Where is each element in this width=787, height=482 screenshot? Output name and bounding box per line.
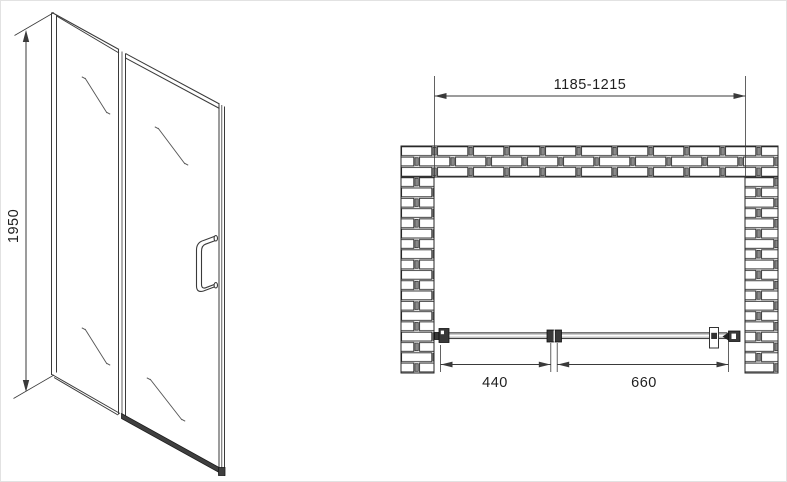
glass-marks bbox=[82, 77, 188, 421]
brick-wall-top bbox=[401, 146, 778, 177]
glass-mark bbox=[155, 127, 188, 165]
fixed-panel bbox=[52, 13, 126, 417]
arrow-left-icon bbox=[435, 93, 447, 99]
height-dimension: 1950 bbox=[6, 13, 54, 399]
plan-view: 1185-1215 bbox=[401, 76, 778, 391]
door-width-label: 660 bbox=[631, 375, 657, 391]
door-glass-plan bbox=[447, 333, 727, 339]
technical-drawing: 1950 bbox=[0, 0, 787, 482]
door-handle-plan bbox=[710, 328, 719, 349]
arrow-right-icon bbox=[717, 362, 729, 368]
arrow-right-icon bbox=[734, 93, 746, 99]
glass-mark bbox=[82, 328, 110, 365]
arrow-right-icon bbox=[539, 362, 551, 368]
width-range-label: 1185-1215 bbox=[554, 77, 627, 93]
door-handle bbox=[197, 236, 218, 292]
glass-mark bbox=[147, 378, 185, 421]
drawing-svg: 1950 bbox=[1, 1, 787, 482]
panel-connector bbox=[547, 330, 562, 342]
glass-mark bbox=[82, 77, 110, 114]
arrow-up-icon bbox=[23, 30, 29, 42]
handle-bottom-mount bbox=[214, 283, 217, 288]
door-stile-foot bbox=[219, 468, 226, 476]
brick-wall-right bbox=[745, 177, 778, 373]
handle-top-mount bbox=[214, 236, 217, 241]
height-dimension-label: 1950 bbox=[6, 209, 22, 243]
brick-wall-left bbox=[401, 177, 434, 373]
arrow-left-icon bbox=[441, 362, 453, 368]
wall-bracket-left bbox=[435, 329, 450, 343]
fixed-panel-width-label: 440 bbox=[482, 375, 508, 391]
arrow-left-icon bbox=[558, 362, 570, 368]
door-width-dimension: 660 bbox=[557, 342, 728, 391]
door-bottom-rail bbox=[122, 414, 225, 476]
front-view: 1950 bbox=[6, 13, 225, 476]
fixed-panel-dimension: 440 bbox=[441, 343, 551, 391]
